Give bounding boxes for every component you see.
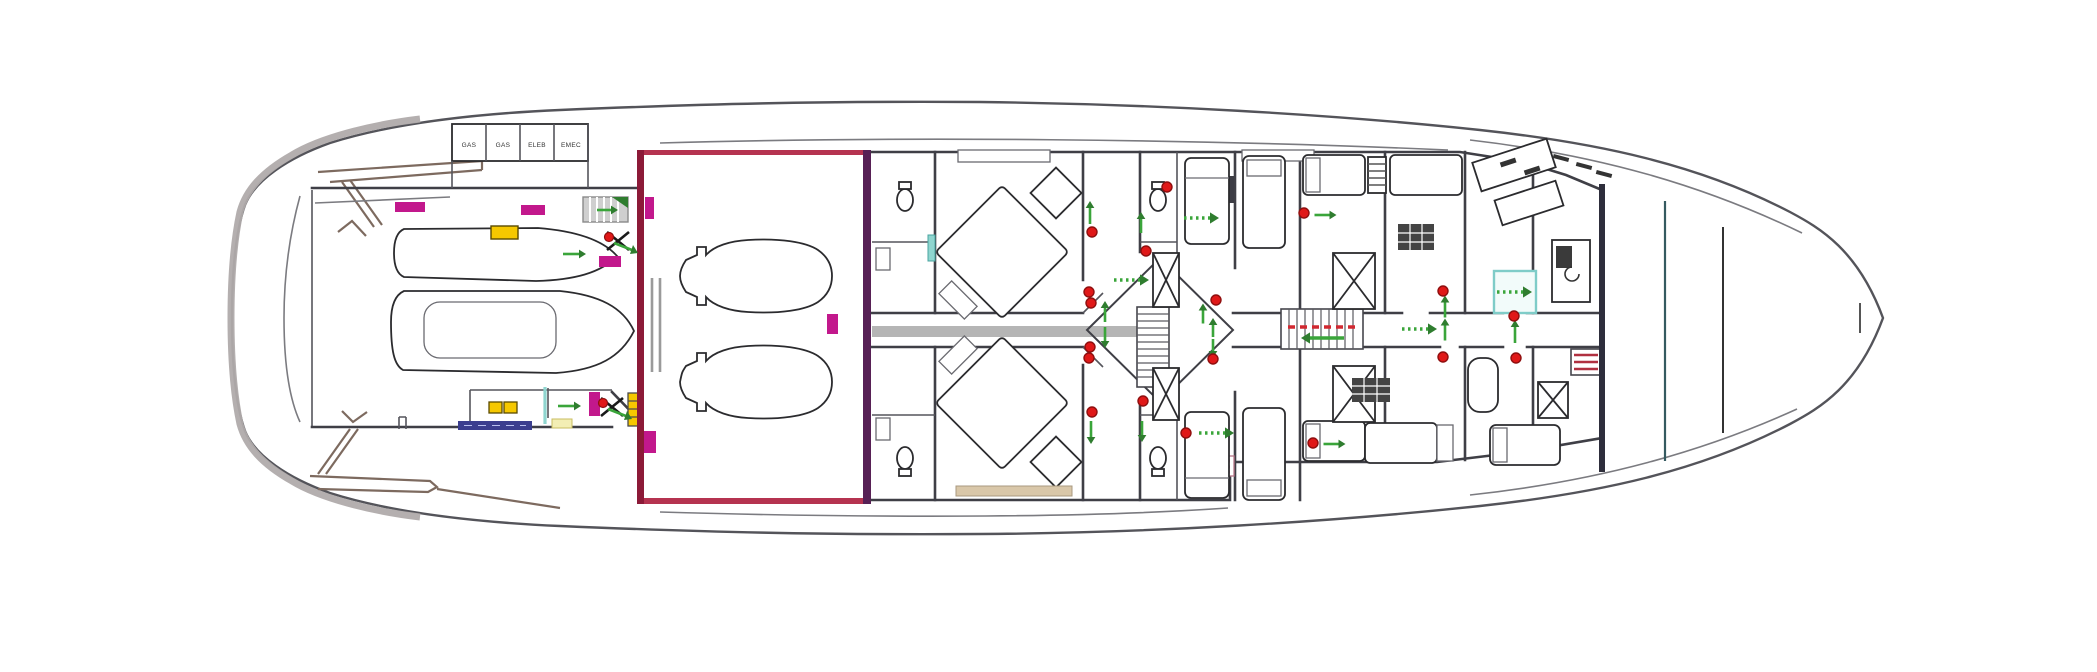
fire-equipment-dot	[1438, 286, 1448, 296]
muster-red-dot	[599, 399, 608, 408]
bed	[1365, 423, 1437, 463]
pale-yellow-marker	[552, 419, 572, 428]
pillow	[1306, 158, 1320, 192]
locker-label-1: GAS	[462, 142, 477, 149]
fire-equipment-dot	[1087, 407, 1097, 417]
deck-plan-canvas: GAS GAS ELEB EMEC	[0, 0, 2097, 672]
fire-equipment-dot	[1511, 353, 1521, 363]
tender-inner-line	[424, 302, 556, 358]
fire-equipment-dot	[1084, 353, 1094, 363]
corridor-floor-band	[872, 326, 1160, 337]
pillow	[1437, 425, 1453, 461]
magenta-marker	[521, 205, 545, 215]
room-border-left	[637, 150, 644, 504]
room-border-bottom	[637, 498, 871, 504]
yellow-square-marker	[504, 402, 517, 413]
fire-equipment-dot	[1308, 438, 1318, 448]
appliance	[1398, 224, 1434, 250]
striped-headboard	[1368, 157, 1386, 193]
fire-equipment-dot	[1299, 208, 1309, 218]
room-border-right	[863, 150, 871, 504]
fire-equipment-dot	[1084, 287, 1094, 297]
passarelle	[458, 421, 532, 430]
pillow	[1247, 160, 1281, 176]
appliance	[1352, 378, 1390, 402]
pillow	[1247, 480, 1281, 496]
room-border-top	[637, 150, 871, 155]
pillow	[1493, 428, 1507, 462]
magenta-marker	[645, 197, 654, 219]
central-stairs-box	[1281, 309, 1363, 349]
jet-ski-2	[680, 345, 832, 418]
bed	[1185, 412, 1229, 498]
toilet	[1150, 447, 1166, 476]
fire-equipment-dot	[1438, 352, 1448, 362]
fire-equipment-dot	[1162, 182, 1172, 192]
fire-equipment-dot	[1141, 246, 1151, 256]
fire-equipment-dot	[1208, 354, 1218, 364]
locker-label-2: GAS	[496, 142, 511, 149]
overhead-rack	[958, 150, 1050, 162]
muster-red-dot	[605, 233, 614, 242]
yellow-marker	[491, 226, 518, 239]
fire-equipment-dot	[1087, 227, 1097, 237]
sink	[876, 418, 890, 440]
magenta-marker	[827, 314, 838, 334]
crew-mess-table	[1468, 358, 1498, 412]
bed	[1390, 155, 1462, 195]
locker-label-3: ELEB	[528, 142, 546, 149]
fire-equipment-dot	[1509, 311, 1519, 321]
yellow-square-marker	[489, 402, 502, 413]
magenta-marker	[599, 256, 621, 267]
fire-equipment-dot	[1181, 428, 1191, 438]
central-stairs	[1281, 309, 1363, 349]
toilet	[897, 182, 913, 211]
forward-stairs	[1571, 349, 1601, 375]
toilet	[897, 447, 913, 476]
magenta-marker	[644, 431, 656, 453]
galley-oven	[1556, 246, 1572, 268]
fire-equipment-dot	[1138, 396, 1148, 406]
deck-plan-drawing: GAS GAS ELEB EMEC	[0, 0, 2097, 672]
magenta-marker	[395, 202, 425, 212]
lower-rack	[956, 486, 1072, 496]
sink	[876, 248, 890, 270]
fire-equipment-dot	[1085, 342, 1095, 352]
jet-ski-1	[680, 239, 832, 312]
fire-equipment-dot	[1211, 295, 1221, 305]
fire-equipment-dot	[1086, 298, 1096, 308]
collision-bulkhead	[1599, 184, 1605, 472]
bed	[1185, 158, 1229, 244]
locker-label-4: EMEC	[561, 142, 581, 149]
teal-strip	[928, 235, 935, 261]
